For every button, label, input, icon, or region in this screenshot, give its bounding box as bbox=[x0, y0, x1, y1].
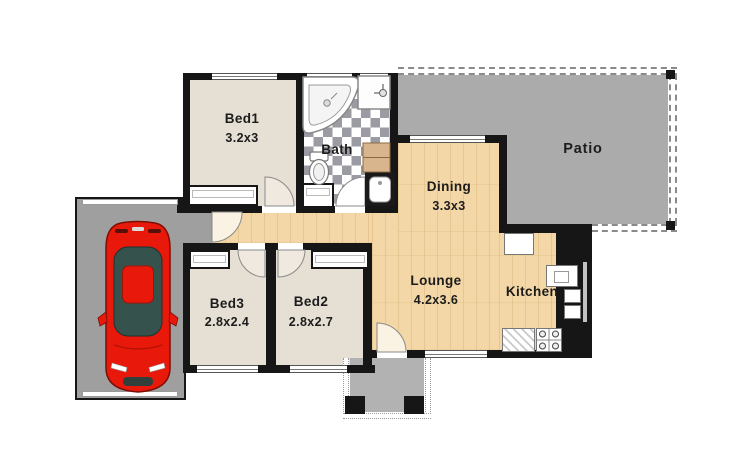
wall-bed1-bottom-a bbox=[183, 206, 262, 213]
lounge-label: Lounge bbox=[376, 273, 496, 289]
garage-floor bbox=[75, 197, 186, 400]
patio-dashed-edge-bottom bbox=[592, 224, 677, 232]
bed1-label: Bed1 bbox=[187, 111, 297, 127]
wall-kitchen-top bbox=[499, 224, 592, 233]
wall-bedrooms-top-b bbox=[265, 243, 278, 250]
floor-plan: Bed1 3.2x3 Bath Patio Dining 3.3x3 Loung… bbox=[0, 0, 732, 460]
dining-label: Dining bbox=[399, 179, 499, 195]
bed2-size-label: 2.8x2.7 bbox=[261, 314, 361, 330]
wall-bath-right bbox=[390, 73, 398, 213]
patio-corner-post-bottom bbox=[666, 221, 675, 230]
bed2-wardrobe bbox=[311, 250, 369, 269]
hall-linen-niche bbox=[302, 183, 334, 208]
lounge-size-label: 4.2x3.6 bbox=[376, 292, 496, 308]
patio-area-upper bbox=[398, 74, 668, 135]
sink-drainer bbox=[502, 328, 535, 352]
bed3-wardrobe bbox=[189, 250, 230, 269]
garage-hall-passage bbox=[184, 213, 212, 243]
lounge-window-bottom bbox=[425, 350, 487, 358]
patio-corner-post-top bbox=[666, 70, 675, 79]
wall-bath-bottom bbox=[365, 206, 398, 213]
patio-dashed-edge-top bbox=[398, 67, 677, 75]
dining-window-patio bbox=[410, 135, 485, 143]
porch-pillar-left bbox=[345, 396, 365, 414]
garage-door-band-bottom bbox=[82, 391, 178, 397]
bath-window-top-1 bbox=[307, 73, 352, 80]
wall-bedrooms-top-c bbox=[303, 243, 372, 250]
counter-edge-strip bbox=[583, 262, 587, 322]
bed2-window-bottom bbox=[290, 365, 347, 373]
wall-dining-right bbox=[499, 135, 507, 232]
dining-size-label: 3.3x3 bbox=[399, 198, 499, 214]
dishwasher-unit bbox=[564, 305, 581, 319]
stove bbox=[536, 328, 562, 352]
bath-label: Bath bbox=[300, 142, 374, 158]
bath-window-top-2 bbox=[360, 73, 388, 80]
garage-door-band-top bbox=[82, 199, 178, 205]
microwave-icon bbox=[554, 271, 569, 283]
bed2-label: Bed2 bbox=[261, 294, 361, 310]
porch-dotted-edge-right bbox=[425, 358, 431, 416]
bed1-size-label: 3.2x3 bbox=[187, 130, 297, 146]
patio-dashed-edge-right bbox=[669, 74, 677, 224]
kitchen-label: Kitchen bbox=[482, 284, 582, 300]
patio-label: Patio bbox=[523, 141, 643, 157]
bed3-window-bottom bbox=[197, 365, 258, 373]
bed1-window-top bbox=[212, 73, 277, 80]
fridge bbox=[504, 233, 534, 255]
porch-pillar-right bbox=[404, 396, 424, 414]
bed1-wardrobe bbox=[188, 185, 258, 206]
wall-bottom-lounge-a bbox=[372, 350, 377, 358]
wall-bedrooms-top-a bbox=[183, 243, 238, 250]
